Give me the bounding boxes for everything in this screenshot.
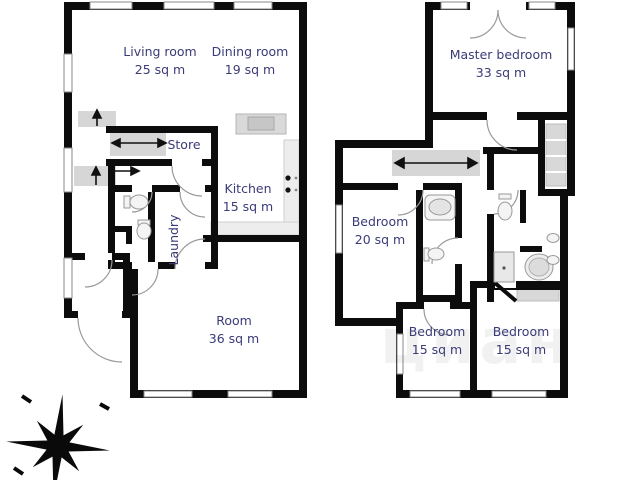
room-area: 33 sq m xyxy=(450,64,553,82)
room-area: 15 sq m xyxy=(493,341,550,359)
room-label-living-room: Living room 25 sq m xyxy=(123,43,196,79)
room-name: Bedroom xyxy=(493,323,550,341)
floorplan-screenshot: циан xyxy=(0,0,627,480)
room-name: Bedroom xyxy=(409,323,466,341)
sink-icon xyxy=(547,256,559,265)
room-name: Kitchen xyxy=(223,180,273,198)
room-label-bedroom-15-left: Bedroom 15 sq m xyxy=(409,323,466,359)
room-name: Laundry xyxy=(165,215,183,266)
room-label-master-bedroom: Master bedroom 33 sq m xyxy=(450,46,553,82)
room-name: Room xyxy=(209,312,259,330)
room-name: Dining room xyxy=(212,43,289,61)
room-label-room: Room 36 sq m xyxy=(209,312,259,348)
room-label-laundry: Laundry xyxy=(165,215,183,266)
room-area: 19 sq m xyxy=(212,61,289,79)
toilet-icon xyxy=(124,196,130,208)
room-area: 15 sq m xyxy=(409,341,466,359)
sink-icon xyxy=(547,234,559,243)
room-name: Master bedroom xyxy=(450,46,553,64)
room-area: 25 sq m xyxy=(123,61,196,79)
room-name: Bedroom xyxy=(352,213,409,231)
room-name: Living room xyxy=(123,43,196,61)
room-label-bedroom-20: Bedroom 20 sq m xyxy=(352,213,409,249)
room-area: 15 sq m xyxy=(223,198,273,216)
room-name: Store xyxy=(167,136,200,154)
room-label-dining-room: Dining room 19 sq m xyxy=(212,43,289,79)
room-area: 20 sq m xyxy=(352,231,409,249)
room-area: 36 sq m xyxy=(209,330,259,348)
room-label-kitchen: Kitchen 15 sq m xyxy=(223,180,273,216)
toilet-icon xyxy=(499,194,511,199)
room-label-store: Store xyxy=(167,136,200,154)
room-label-bedroom-15-right: Bedroom 15 sq m xyxy=(493,323,550,359)
compass-rose-icon xyxy=(6,394,110,480)
